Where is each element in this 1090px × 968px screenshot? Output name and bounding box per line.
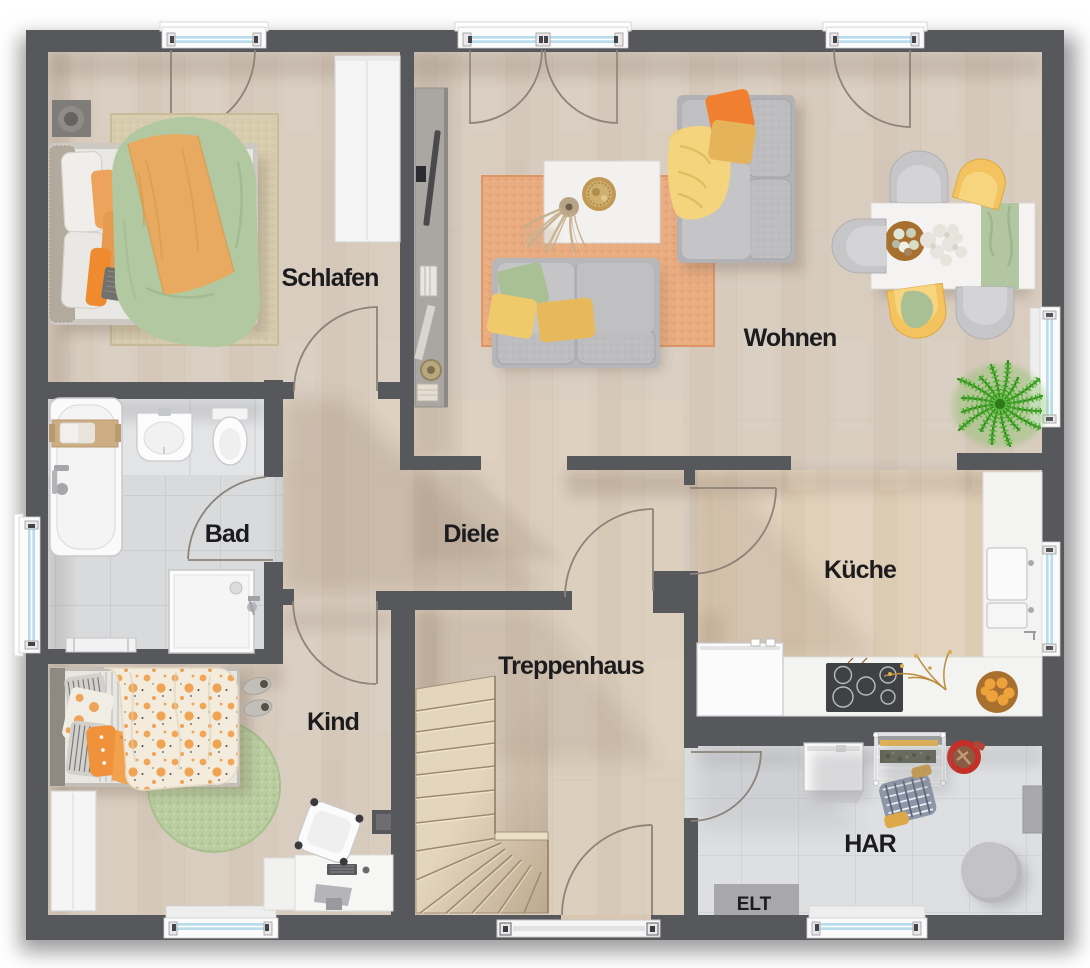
svg-text:ELT: ELT	[737, 894, 772, 915]
svg-text:Treppenhaus: Treppenhaus	[498, 652, 644, 680]
svg-text:Küche: Küche	[824, 556, 897, 584]
svg-text:Bad: Bad	[205, 520, 250, 548]
svg-text:Wohnen: Wohnen	[744, 324, 837, 352]
svg-text:Kind: Kind	[307, 708, 359, 736]
svg-text:HAR: HAR	[844, 830, 896, 858]
svg-text:Schlafen: Schlafen	[282, 264, 379, 292]
svg-text:Diele: Diele	[443, 520, 499, 548]
